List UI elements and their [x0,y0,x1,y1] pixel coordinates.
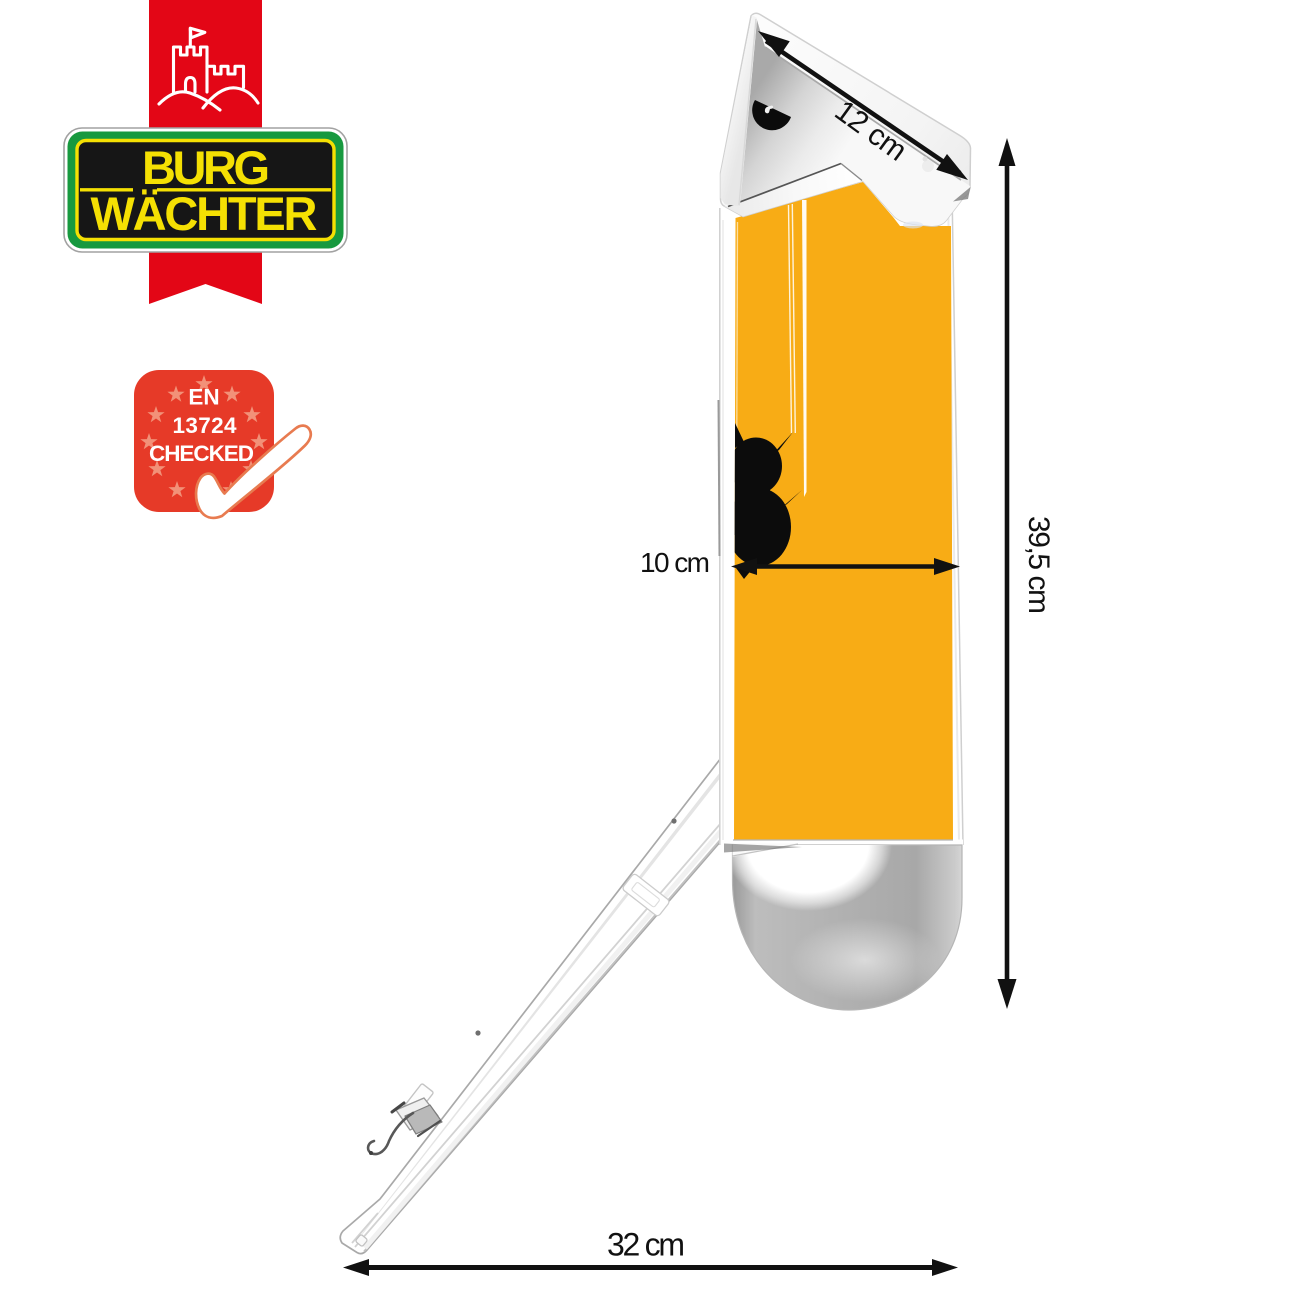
svg-text:10 cm: 10 cm [640,547,710,578]
svg-text:EN: EN [188,385,219,410]
svg-text:32 cm: 32 cm [607,1227,685,1263]
svg-text:13724: 13724 [173,413,237,438]
svg-text:39,5 cm: 39,5 cm [1022,516,1055,614]
svg-text:CHECKED: CHECKED [149,441,254,466]
svg-text:WÄCHTER: WÄCHTER [91,187,318,240]
